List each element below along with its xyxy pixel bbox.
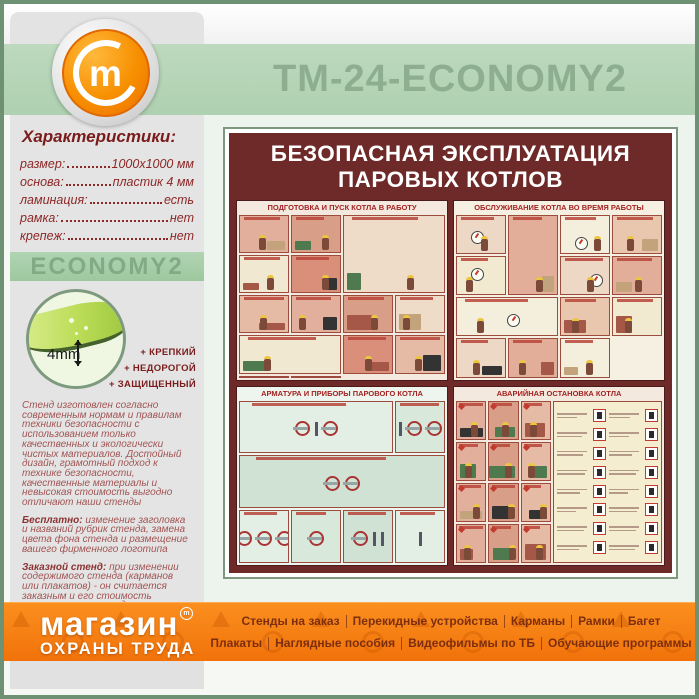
valve-icon bbox=[325, 476, 340, 491]
action-glyph bbox=[597, 431, 602, 438]
caption-strip bbox=[617, 299, 653, 302]
sidebar-bottom-strip bbox=[10, 660, 204, 689]
action-glyph bbox=[649, 431, 654, 438]
worker-figure bbox=[502, 425, 509, 437]
quadrant-body bbox=[454, 399, 664, 566]
worker-figure bbox=[536, 280, 543, 292]
spec-label: ламинация: bbox=[20, 193, 88, 207]
drop-icon bbox=[69, 318, 74, 323]
illustration-cell bbox=[395, 401, 445, 454]
caption-lines bbox=[609, 451, 642, 456]
caption-line bbox=[557, 470, 587, 472]
quadrant: ПОДГОТОВКА И ПУСК КОТЛА В РАБОТУ bbox=[236, 200, 448, 381]
caption-lines bbox=[557, 489, 590, 494]
table-row bbox=[557, 466, 658, 479]
shop-logo[interactable]: магазинm ОХРАНЫ ТРУДА bbox=[40, 607, 195, 658]
action-glyph bbox=[597, 544, 602, 551]
worker-figure bbox=[594, 239, 601, 251]
table-row bbox=[557, 485, 658, 498]
caption-line bbox=[609, 511, 637, 513]
valve-figures bbox=[398, 408, 442, 451]
product-page: ТМ-24-ECONOMY2 m Характеристики: размер:… bbox=[0, 0, 699, 699]
action-icon bbox=[645, 428, 658, 441]
caption-strip bbox=[244, 512, 277, 515]
quadrant-body bbox=[237, 399, 447, 566]
characteristics-title: Характеристики: bbox=[22, 127, 204, 147]
valve-icon bbox=[353, 531, 368, 546]
action-glyph bbox=[597, 506, 602, 513]
machine-shape bbox=[482, 366, 502, 374]
machine-shape bbox=[534, 466, 546, 478]
worker-figure bbox=[365, 359, 372, 371]
caption-strip bbox=[461, 340, 488, 343]
worker-figure bbox=[322, 278, 329, 290]
worker-figure bbox=[519, 363, 526, 375]
caption-lines bbox=[557, 526, 590, 531]
caption-line bbox=[609, 492, 628, 494]
spec-value: нет bbox=[170, 229, 194, 243]
features-list: + КРЕПКИЙ+ НЕДОРОГОЙ+ ЗАЩИЩЕННЫЙ bbox=[109, 342, 196, 395]
caption-lines bbox=[557, 470, 590, 475]
action-icon bbox=[645, 466, 658, 479]
valve-icon bbox=[345, 476, 360, 491]
caption-strip bbox=[465, 299, 528, 302]
caption-line bbox=[557, 492, 580, 494]
caption-strip bbox=[348, 337, 386, 340]
caption-strip bbox=[400, 512, 435, 515]
spec-row: рамка:нет bbox=[20, 207, 194, 225]
action-icon bbox=[645, 485, 658, 498]
poster-quadrants: ПОДГОТОВКА И ПУСК КОТЛА В РАБОТУОБСЛУЖИВ… bbox=[236, 200, 665, 566]
illustration-cell bbox=[612, 297, 662, 336]
valve-figures bbox=[242, 517, 286, 560]
caption-lines bbox=[557, 451, 590, 456]
illustration-cell bbox=[343, 215, 445, 293]
machine-shape bbox=[541, 362, 554, 375]
spec-label: размер: bbox=[20, 157, 65, 171]
action-icon bbox=[645, 541, 658, 554]
valve-icon bbox=[399, 422, 402, 436]
action-icon bbox=[593, 522, 606, 535]
menu-row-1: Стенды на заказПерекидные устройстваКарм… bbox=[207, 614, 695, 628]
brand-m-logo-icon: m bbox=[52, 19, 159, 126]
illustration-cell bbox=[395, 335, 445, 373]
action-glyph bbox=[649, 544, 654, 551]
logo-ring bbox=[64, 31, 147, 114]
illustration-cell bbox=[488, 401, 518, 440]
illustration-cell bbox=[395, 295, 445, 333]
spec-leader-dots bbox=[90, 202, 162, 204]
caption-line bbox=[609, 436, 629, 438]
machine-shape bbox=[642, 239, 658, 252]
caption-strip bbox=[565, 299, 596, 302]
caption-line bbox=[609, 413, 639, 415]
worker-figure bbox=[528, 466, 535, 478]
action-icon bbox=[645, 503, 658, 516]
caption-lines bbox=[609, 432, 642, 437]
caption-strip bbox=[617, 258, 652, 261]
caption-strip bbox=[400, 337, 440, 340]
spec-value: нет bbox=[170, 211, 194, 225]
caption-lines bbox=[557, 507, 590, 512]
valve-icon bbox=[323, 421, 338, 436]
quadrant-title: ПОДГОТОВКА И ПУСК КОТЛА В РАБОТУ bbox=[237, 201, 447, 213]
worker-figure bbox=[587, 280, 594, 292]
sidebar: Характеристики: размер:1000х1000 ммоснов… bbox=[10, 115, 204, 660]
worker-figure bbox=[466, 280, 473, 292]
caption-lines bbox=[609, 507, 642, 512]
menu-row-2: ПлакатыНаглядные пособияВидеофильмы по Т… bbox=[207, 636, 695, 650]
spec-row: крепеж:нет bbox=[20, 225, 194, 243]
menu-item-2[interactable]: Наглядные пособия bbox=[269, 636, 401, 650]
worker-figure bbox=[471, 425, 478, 437]
action-glyph bbox=[649, 525, 654, 532]
illustration-cell bbox=[456, 338, 506, 377]
illustration-cell bbox=[560, 338, 610, 377]
action-icon bbox=[645, 409, 658, 422]
thickness-label: 4mm bbox=[47, 346, 80, 363]
spec-value: пластик 4 мм bbox=[113, 175, 194, 189]
gauge-icon bbox=[507, 314, 520, 327]
caption-strip bbox=[400, 403, 440, 406]
action-icon bbox=[593, 485, 606, 498]
valve-icon bbox=[295, 421, 310, 436]
shop-name: магазинm bbox=[40, 607, 195, 640]
illustration-cell bbox=[456, 297, 558, 336]
machine-shape bbox=[347, 273, 361, 290]
product-poster-image: БЕЗОПАСНАЯ ЭКСПЛУАТАЦИЯ ПАРОВЫХ КОТЛОВ П… bbox=[223, 127, 678, 579]
worker-figure bbox=[530, 425, 537, 437]
poster-title-line1: БЕЗОПАСНАЯ ЭКСПЛУАТАЦИЯ bbox=[229, 141, 672, 167]
illustration-cell bbox=[291, 376, 341, 378]
worker-figure bbox=[464, 548, 471, 560]
menu-item-5[interactable]: Багет bbox=[622, 614, 667, 628]
illustration-cell bbox=[456, 442, 486, 481]
gauge-icon bbox=[575, 237, 588, 250]
caption-strip bbox=[461, 258, 488, 261]
machine-shape bbox=[542, 276, 554, 292]
illustration-cell bbox=[291, 295, 341, 333]
caption-line bbox=[557, 511, 577, 513]
worker-figure bbox=[407, 278, 414, 290]
spec-value: 1000х1000 мм bbox=[112, 157, 194, 171]
illustration-cell bbox=[560, 215, 610, 254]
caption-line bbox=[557, 413, 587, 415]
caption-lines bbox=[557, 432, 590, 437]
worker-figure bbox=[260, 318, 267, 330]
machine-shape bbox=[423, 355, 441, 370]
valve-icon bbox=[407, 421, 422, 436]
caption-strip bbox=[565, 258, 603, 261]
worker-figure bbox=[264, 359, 271, 371]
triangle-sign-icon bbox=[12, 611, 30, 627]
drop-icon bbox=[75, 332, 78, 335]
illustration-cell bbox=[456, 483, 486, 522]
caption-strip bbox=[513, 217, 542, 220]
menu-item-2[interactable]: Перекидные устройства bbox=[347, 614, 504, 628]
caption-strip bbox=[252, 403, 346, 406]
caption-line bbox=[557, 473, 585, 475]
valve-figures bbox=[398, 517, 442, 560]
action-glyph bbox=[597, 450, 602, 457]
illustration-cell bbox=[291, 255, 341, 293]
worker-figure bbox=[371, 318, 378, 330]
action-icon bbox=[593, 447, 606, 460]
caption-lines bbox=[609, 413, 642, 418]
machine-shape bbox=[267, 241, 285, 250]
caption-line bbox=[557, 417, 577, 419]
action-glyph bbox=[649, 469, 654, 476]
action-icon bbox=[593, 541, 606, 554]
action-glyph bbox=[597, 412, 602, 419]
caption-strip bbox=[296, 257, 329, 260]
illustration-cell bbox=[521, 401, 551, 440]
worker-figure bbox=[415, 359, 422, 371]
valve-figures bbox=[346, 517, 390, 560]
caption-strip bbox=[348, 297, 384, 300]
footer-menu: Стенды на заказПерекидные устройстваКарм… bbox=[207, 603, 695, 661]
bottom-navigation-bar: магазинm ОХРАНЫ ТРУДА Стенды на заказПер… bbox=[4, 602, 695, 661]
valve-icon bbox=[427, 421, 442, 436]
machine-shape bbox=[399, 314, 421, 331]
action-glyph bbox=[597, 488, 602, 495]
caption-strip bbox=[565, 217, 596, 220]
action-icon bbox=[593, 409, 606, 422]
machine-shape bbox=[323, 317, 337, 331]
action-icon bbox=[593, 428, 606, 441]
caption-line bbox=[609, 507, 639, 509]
illustration-cell bbox=[456, 256, 506, 295]
illustration-cell bbox=[456, 215, 506, 254]
illustration-cell bbox=[291, 215, 341, 253]
menu-item-4[interactable]: Обучающие программы bbox=[542, 636, 695, 650]
valve-figures bbox=[294, 517, 338, 560]
feature-item: + ЗАЩИЩЕННЫЙ bbox=[109, 379, 196, 390]
worker-figure bbox=[299, 318, 306, 330]
illustration-cell bbox=[239, 255, 289, 293]
caption-lines bbox=[609, 545, 642, 550]
valve-icon bbox=[239, 531, 252, 546]
illustration-cell bbox=[521, 524, 551, 563]
spec-value: есть bbox=[164, 193, 194, 207]
worker-figure bbox=[586, 363, 593, 375]
illustration-cell bbox=[395, 510, 445, 563]
caption-strip bbox=[248, 337, 316, 340]
spec-row: размер:1000х1000 мм bbox=[20, 153, 194, 171]
spec-leader-dots bbox=[68, 238, 168, 240]
menu-item-4[interactable]: Рамки bbox=[572, 614, 621, 628]
emergency-actions-table bbox=[553, 401, 662, 564]
poster-title-line2: ПАРОВЫХ КОТЛОВ bbox=[229, 167, 672, 193]
emergency-scenes-grid bbox=[456, 401, 551, 564]
illustration-cell bbox=[239, 335, 341, 373]
caption-lines bbox=[557, 413, 590, 418]
valve-figures bbox=[242, 462, 442, 505]
caption-line bbox=[609, 526, 639, 528]
caption-line bbox=[609, 470, 639, 472]
valve-icon bbox=[419, 532, 422, 546]
worker-figure bbox=[540, 507, 547, 519]
caption-line bbox=[609, 432, 639, 434]
caption-strip bbox=[461, 217, 494, 220]
caption-line bbox=[609, 545, 639, 547]
description-paragraph: Бесплатно: изменение заголовка и названи… bbox=[22, 516, 192, 555]
caption-lines bbox=[609, 489, 642, 494]
illustration-cell bbox=[239, 376, 289, 378]
valve-icon bbox=[309, 531, 324, 546]
spec-label: основа: bbox=[20, 175, 64, 189]
caption-line bbox=[557, 432, 587, 434]
machine-shape bbox=[295, 241, 311, 250]
model-badge: ECONOMY2 bbox=[10, 252, 204, 281]
spec-row: основа:пластик 4 мм bbox=[20, 171, 194, 189]
caption-line bbox=[557, 436, 582, 438]
specs-list: размер:1000х1000 ммоснова:пластик 4 ммла… bbox=[10, 153, 204, 243]
illustration-cell bbox=[239, 510, 289, 563]
illustration-cell bbox=[456, 401, 486, 440]
spec-row: ламинация:есть bbox=[20, 189, 194, 207]
worker-figure bbox=[481, 239, 488, 251]
menu-item-1[interactable]: Стенды на заказ bbox=[235, 614, 345, 628]
caption-line bbox=[557, 549, 579, 551]
illustration-cell bbox=[560, 297, 610, 336]
illustration-cell bbox=[488, 442, 518, 481]
worker-figure bbox=[536, 548, 543, 560]
caption-strip bbox=[513, 340, 542, 343]
caption-strip bbox=[296, 512, 327, 515]
caption-strip bbox=[256, 457, 385, 460]
quadrant-body bbox=[454, 213, 664, 380]
illustration-cell bbox=[291, 510, 341, 563]
description-paragraph: Стенд изготовлен согласно современным но… bbox=[22, 401, 192, 508]
worker-figure bbox=[473, 363, 480, 375]
caption-line bbox=[557, 545, 587, 547]
table-row bbox=[557, 428, 658, 441]
action-icon bbox=[645, 447, 658, 460]
trademark-m-icon: m bbox=[180, 607, 193, 620]
machine-shape bbox=[243, 283, 259, 290]
caption-strip bbox=[348, 512, 387, 515]
worker-figure bbox=[508, 507, 515, 519]
table-row bbox=[557, 447, 658, 460]
feature-item: + КРЕПКИЙ bbox=[109, 347, 196, 358]
action-icon bbox=[593, 466, 606, 479]
caption-strip bbox=[244, 257, 280, 260]
action-icon bbox=[645, 522, 658, 535]
worker-figure bbox=[572, 321, 579, 333]
caption-line bbox=[609, 489, 639, 491]
caption-line bbox=[557, 454, 583, 456]
action-glyph bbox=[649, 450, 654, 457]
menu-item-3[interactable]: Видеофильмы по ТБ bbox=[402, 636, 541, 650]
caption-line bbox=[609, 530, 636, 532]
action-icon bbox=[593, 503, 606, 516]
caption-lines bbox=[557, 545, 590, 550]
worker-figure bbox=[477, 321, 484, 333]
caption-strip bbox=[244, 217, 280, 220]
action-glyph bbox=[597, 469, 602, 476]
valve-icon bbox=[257, 531, 272, 546]
poster-title: БЕЗОПАСНАЯ ЭКСПЛУАТАЦИЯ ПАРОВЫХ КОТЛОВ bbox=[229, 133, 672, 193]
quadrant-body bbox=[237, 213, 447, 380]
illustration-cell bbox=[343, 295, 393, 333]
worker-figure bbox=[403, 318, 410, 330]
menu-item-3[interactable]: Карманы bbox=[505, 614, 571, 628]
feature-item: + НЕДОРОГОЙ bbox=[109, 363, 196, 374]
caption-lines bbox=[609, 526, 642, 531]
valve-icon bbox=[381, 532, 384, 546]
worker-figure bbox=[259, 238, 266, 250]
menu-item-1[interactable]: Плакаты bbox=[204, 636, 268, 650]
action-glyph bbox=[649, 488, 654, 495]
worker-figure bbox=[505, 466, 512, 478]
caption-line bbox=[557, 526, 587, 528]
caption-line bbox=[557, 489, 587, 491]
valve-icon bbox=[315, 422, 318, 436]
valve-icon bbox=[277, 531, 290, 546]
quadrant: АВАРИЙНАЯ ОСТАНОВКА КОТЛА bbox=[453, 386, 665, 567]
caption-strip bbox=[352, 217, 418, 220]
caption-line bbox=[609, 473, 636, 475]
logo-orange-disc: m bbox=[62, 29, 150, 117]
illustration-cell bbox=[612, 256, 662, 295]
illustration-cell bbox=[508, 338, 558, 377]
spec-leader-dots bbox=[67, 166, 109, 168]
worker-figure bbox=[509, 548, 516, 560]
illustration-cell bbox=[239, 455, 445, 508]
caption-strip bbox=[565, 340, 593, 343]
caption-line bbox=[557, 530, 584, 532]
table-row bbox=[557, 503, 658, 516]
page-title: ТМ-24-ECONOMY2 bbox=[212, 44, 688, 115]
machine-shape bbox=[616, 282, 632, 292]
valve-figures bbox=[242, 408, 390, 451]
caption-line bbox=[609, 451, 639, 453]
table-row bbox=[557, 522, 658, 535]
spec-label: крепеж: bbox=[20, 229, 66, 243]
worker-figure bbox=[627, 239, 634, 251]
caption-strip bbox=[296, 297, 331, 300]
illustration-cell bbox=[239, 401, 393, 454]
action-glyph bbox=[649, 506, 654, 513]
illustration-cell bbox=[488, 524, 518, 563]
caption-line bbox=[609, 454, 632, 456]
caption-strip bbox=[400, 297, 433, 300]
illustration-cell bbox=[612, 215, 662, 254]
plastic-thickness-illustration: 4mm + КРЕПКИЙ+ НЕДОРОГОЙ+ ЗАЩИЩЕННЫЙ bbox=[10, 281, 204, 397]
quadrant-title: ОБСЛУЖИВАНИЕ КОТЛА ВО ВРЕМЯ РАБОТЫ bbox=[454, 201, 664, 213]
illustration-cell bbox=[343, 335, 393, 373]
shop-subtitle: ОХРАНЫ ТРУДА bbox=[40, 641, 195, 658]
action-glyph bbox=[597, 525, 602, 532]
worker-figure bbox=[473, 507, 480, 519]
spec-label: рамка: bbox=[20, 211, 59, 225]
caption-strip bbox=[296, 217, 325, 220]
caption-line bbox=[609, 417, 630, 419]
caption-line bbox=[557, 451, 587, 453]
caption-strip bbox=[617, 217, 653, 220]
illustration-cell bbox=[560, 256, 610, 295]
worker-figure bbox=[267, 278, 274, 290]
worker-figure bbox=[625, 321, 632, 333]
quadrant-title: АВАРИЙНАЯ ОСТАНОВКА КОТЛА bbox=[454, 387, 664, 399]
spec-leader-dots bbox=[66, 184, 111, 186]
caption-line bbox=[557, 507, 587, 509]
caption-line bbox=[609, 549, 635, 551]
illustration-cell bbox=[456, 524, 486, 563]
illustration-cell bbox=[488, 483, 518, 522]
drop-icon bbox=[84, 326, 88, 330]
